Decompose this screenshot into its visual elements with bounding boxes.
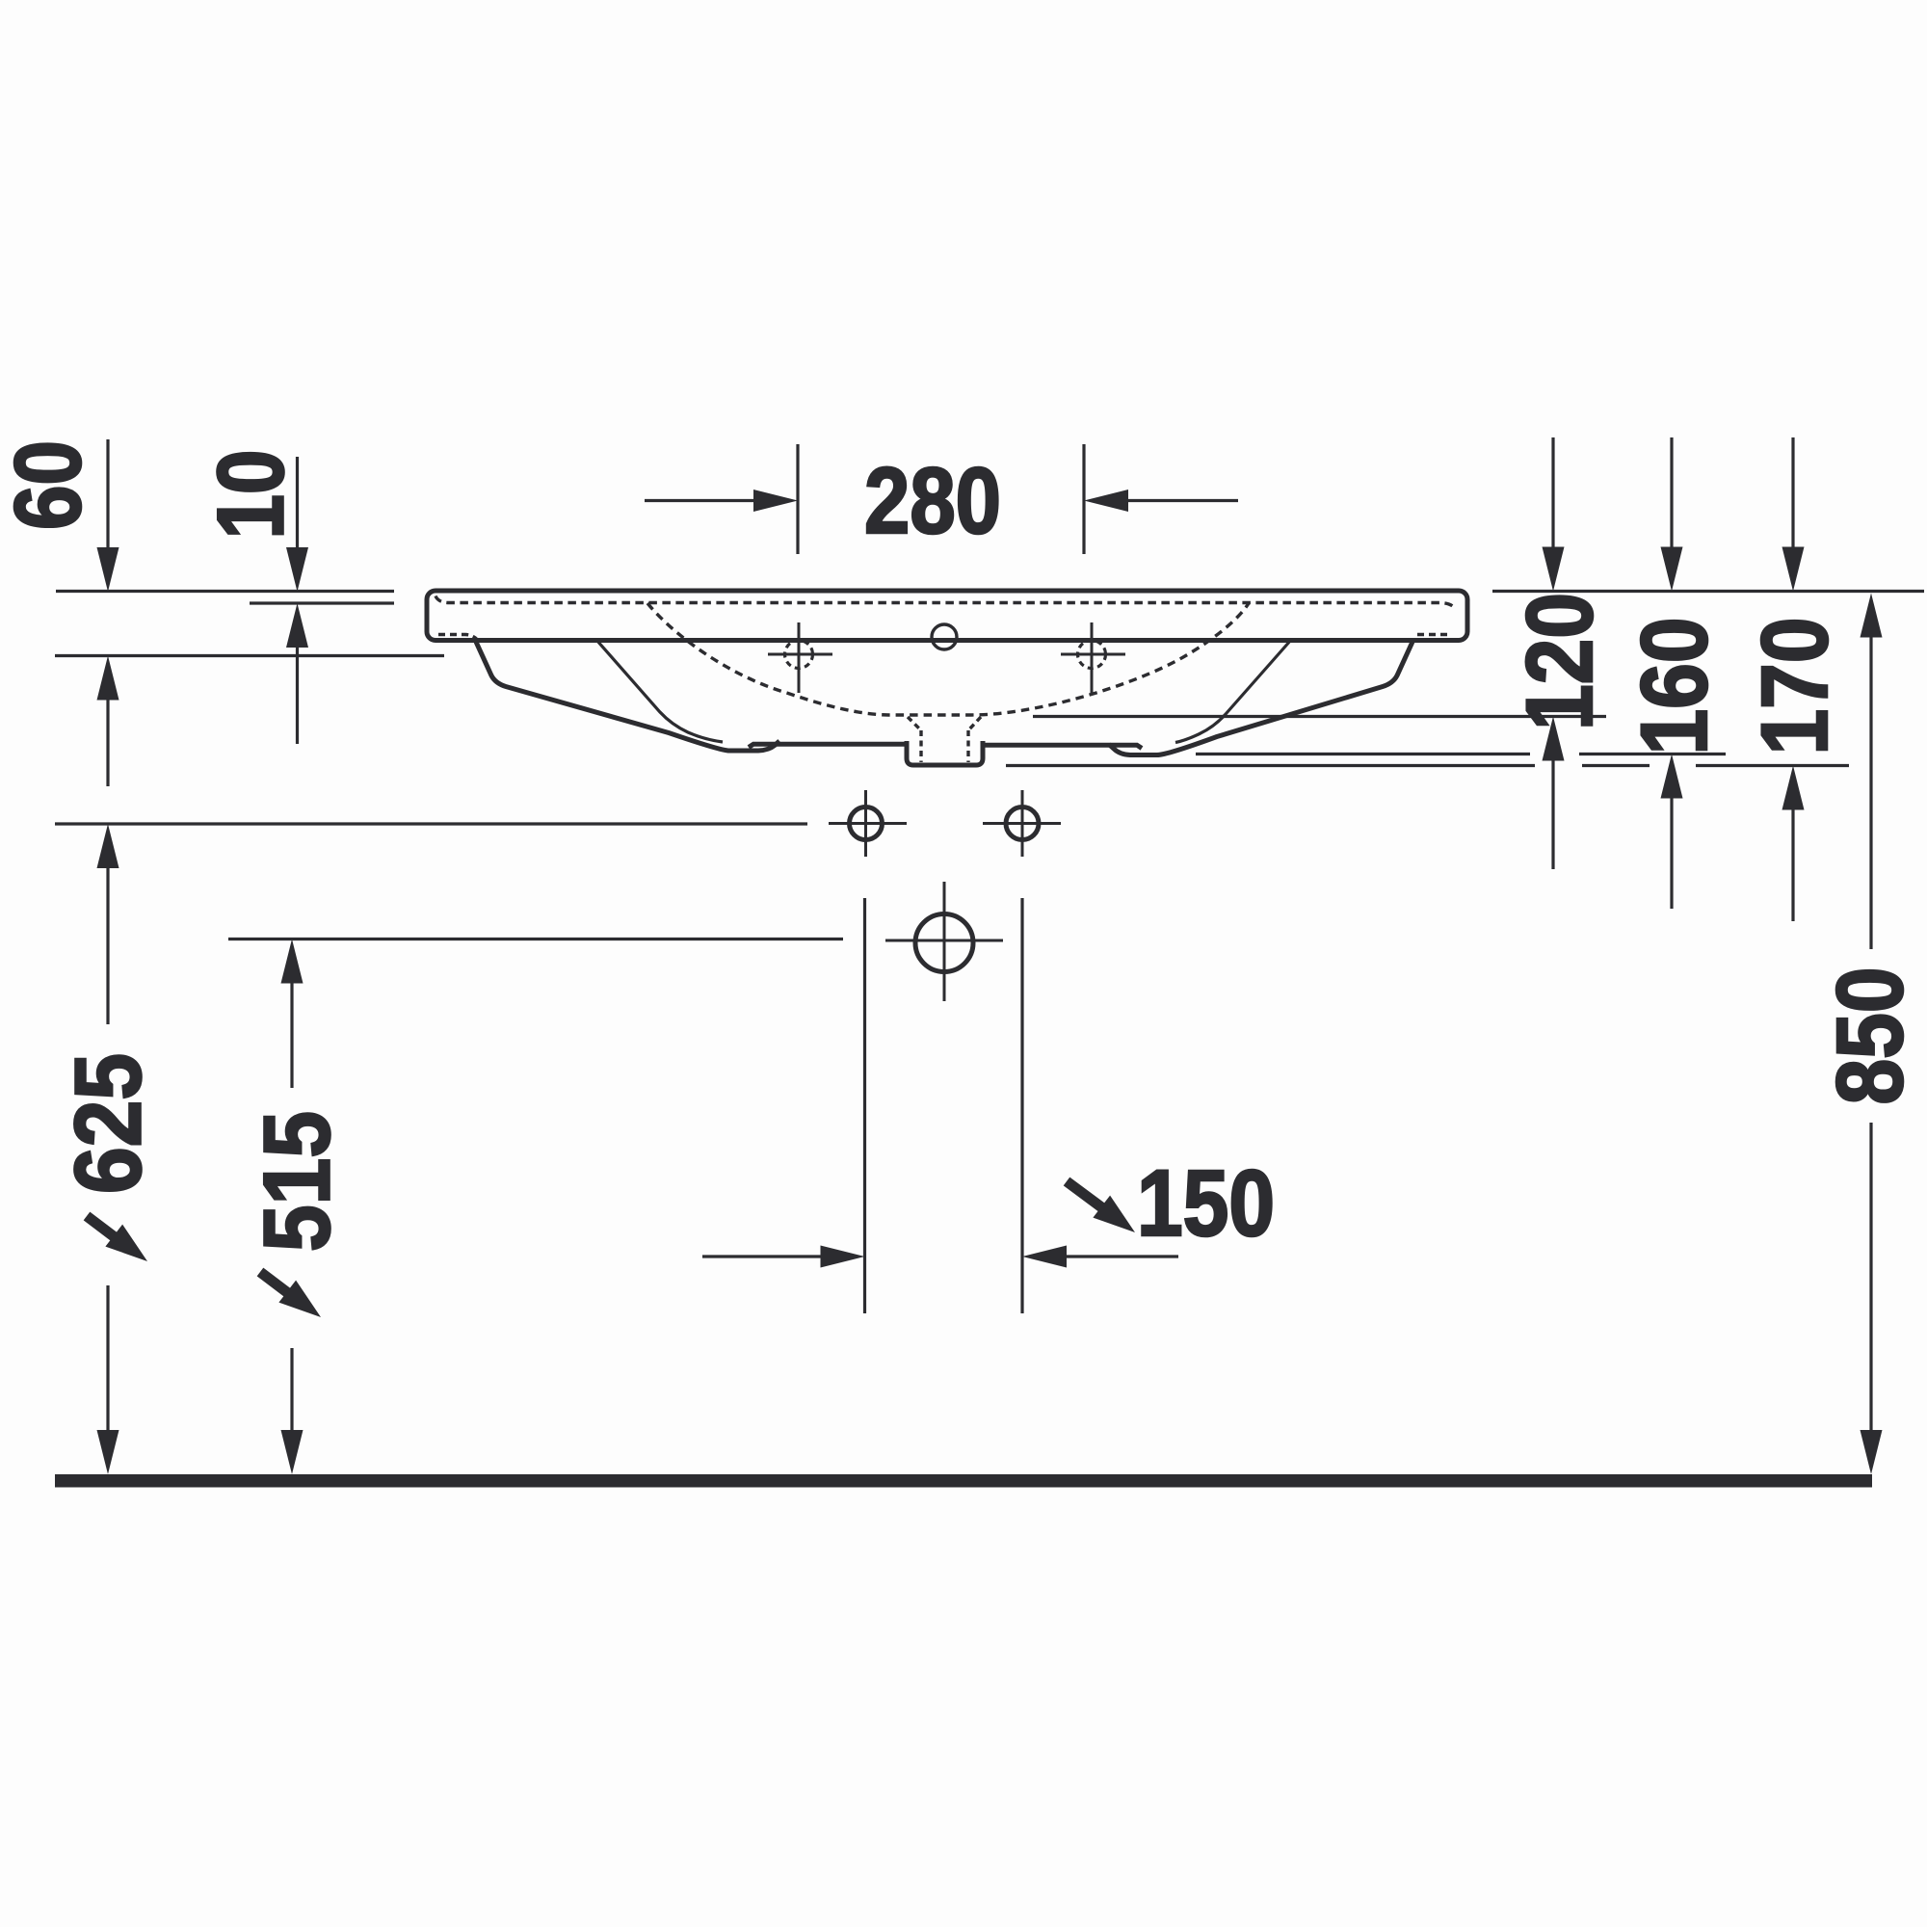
svg-text:170: 170 — [1742, 618, 1847, 755]
svg-text:625: 625 — [56, 1053, 161, 1194]
svg-text:60: 60 — [0, 440, 100, 530]
svg-text:850: 850 — [1817, 967, 1922, 1105]
svg-text:160: 160 — [1622, 618, 1727, 755]
svg-text:515: 515 — [245, 1111, 350, 1252]
svg-text:150: 150 — [1137, 1151, 1275, 1256]
svg-text:280: 280 — [864, 448, 1001, 553]
svg-text:10: 10 — [198, 450, 304, 540]
svg-text:120: 120 — [1507, 593, 1612, 730]
